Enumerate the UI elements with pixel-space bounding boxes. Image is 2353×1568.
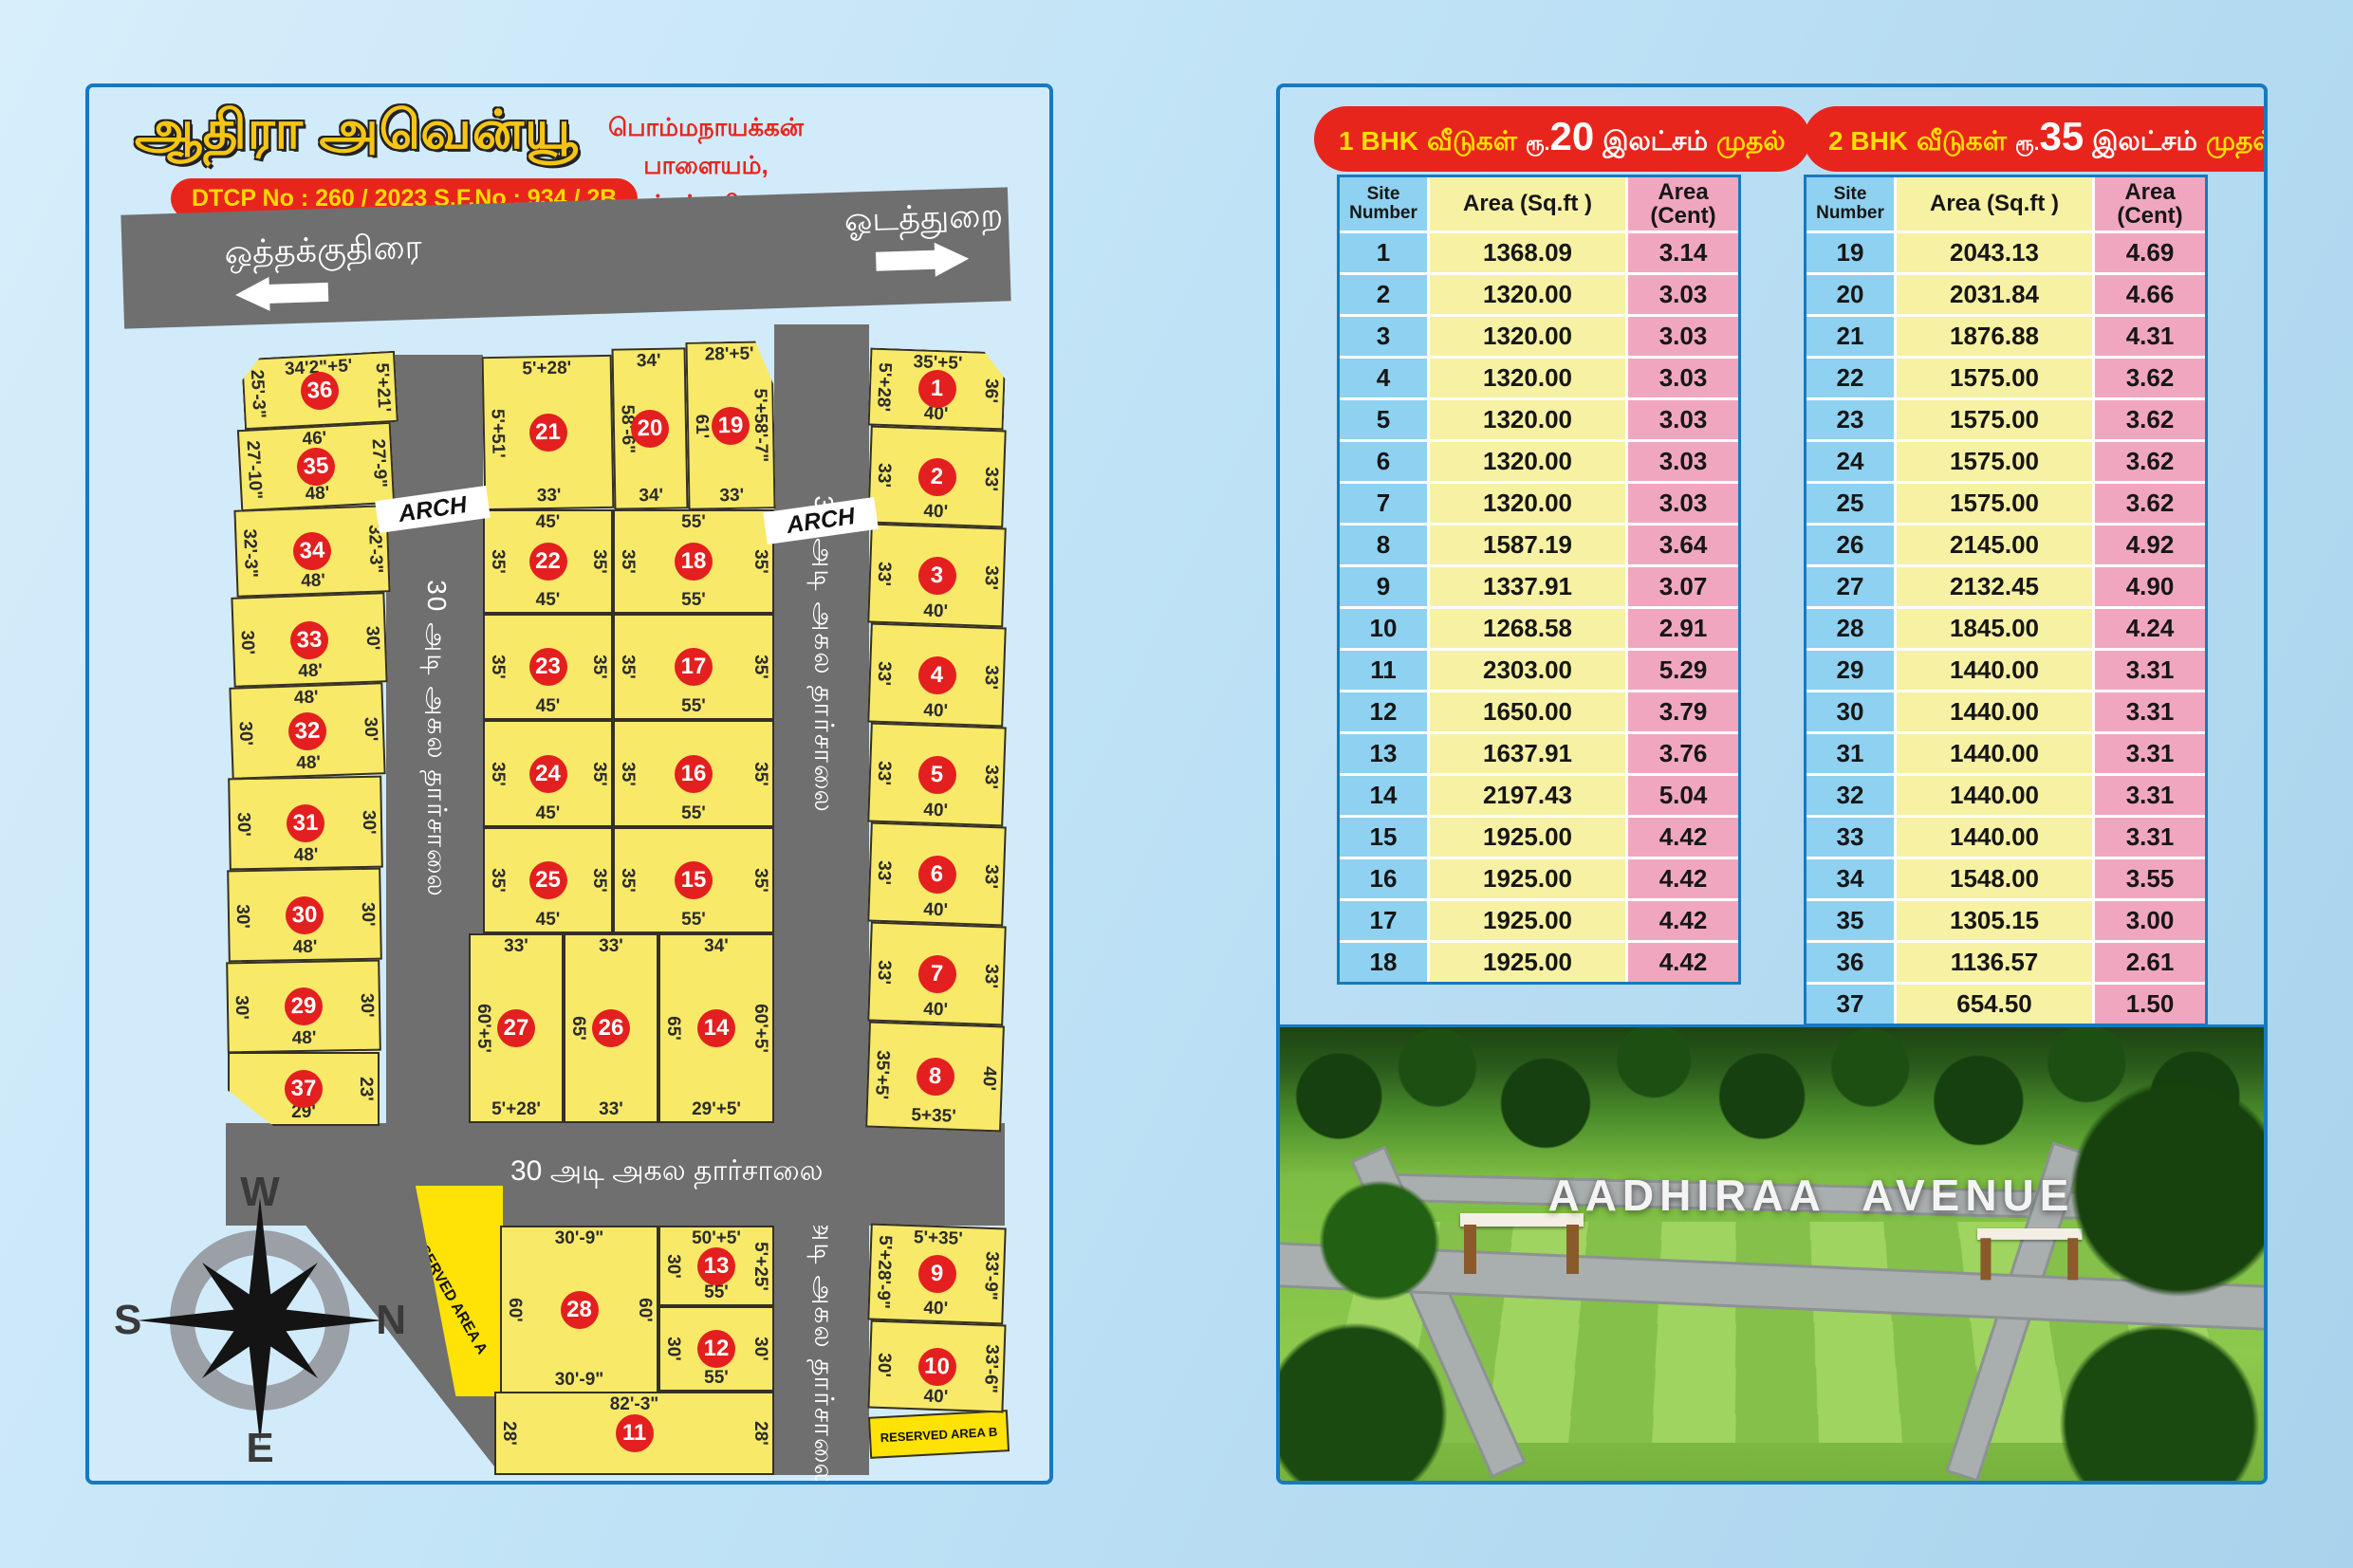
plot-34-dim-left: 32'-3" <box>238 528 261 578</box>
table-cell: 13 <box>1340 734 1427 773</box>
plot-number-badge: 13 <box>697 1247 735 1285</box>
table-cell: 2.61 <box>2095 943 2205 982</box>
plot-11: 82'-3"28'28'11 <box>494 1392 774 1475</box>
table-cell: 3.31 <box>2095 776 2205 815</box>
plot-5: 40'33'33'5 <box>867 723 1007 827</box>
table-cell: 33 <box>1806 818 1894 857</box>
compass-left-label: S <box>114 1297 141 1344</box>
plot-8: 5+35'35'+5'40'8 <box>865 1022 1005 1133</box>
table-cell: 1 <box>1340 233 1427 272</box>
table-cell: 4.42 <box>1628 901 1738 940</box>
table-cell: 1305.15 <box>1897 901 2092 940</box>
table-cell: 19 <box>1806 233 1894 272</box>
plot-31-dim-right: 30' <box>358 809 379 834</box>
plot-8-dim-bottom: 5+35' <box>911 1105 956 1128</box>
location-line-1: பொம்மநாயக்கன் பாளையம், <box>583 108 829 185</box>
table-cell: 1637.91 <box>1430 734 1625 773</box>
plot-number-badge: 19 <box>712 406 750 445</box>
plot-6-dim-right: 33' <box>980 863 1002 888</box>
plot-9-dim-left: 5'+28'-9" <box>872 1235 896 1309</box>
plot-17: 55'35'35'17 <box>613 614 774 720</box>
plot-36: 34'2"+5'25'-3"5'+21'36 <box>241 351 398 430</box>
plot-13: 50'+5'55'30'5'+25'13 <box>658 1226 774 1306</box>
plot-number-badge: 3 <box>917 556 956 595</box>
plot-32: 48'48'30'30'32 <box>229 682 385 780</box>
table-cell: 5 <box>1340 400 1427 439</box>
table-cell: 5.29 <box>1628 651 1738 690</box>
plot-24-dim-left: 35' <box>487 762 508 786</box>
plot-24-dim-bottom: 45' <box>536 803 561 824</box>
table-cell: 3.03 <box>1628 275 1738 314</box>
plot-35: 46'48'27'-10"27'-9"35 <box>237 422 395 511</box>
plot-21-dim-left: 5'+51' <box>487 409 509 458</box>
plot-6-dim-left: 33' <box>873 859 895 884</box>
table-cell: 23 <box>1806 400 1894 439</box>
plot-26: 33'33'65'26 <box>564 933 658 1123</box>
plot-23-dim-right: 35' <box>588 655 609 679</box>
table-cell: 1548.00 <box>1897 859 2092 898</box>
column-header: Area (Sq.ft ) <box>1430 177 1625 231</box>
table-cell: 28 <box>1806 609 1894 648</box>
plot-12-dim-left: 30' <box>662 1337 683 1361</box>
plot-12: 55'30'30'12 <box>658 1306 774 1392</box>
plot-37: 29'23'37 <box>228 1052 380 1126</box>
table-cell: 6 <box>1340 442 1427 481</box>
plot-14-dim-top: 34' <box>704 936 729 957</box>
plot-number-badge: 29 <box>285 987 324 1026</box>
plot-24: 45'35'35'24 <box>483 720 613 827</box>
plot-15-dim-bottom: 55' <box>681 910 706 931</box>
table-cell: 3.62 <box>2095 442 2205 481</box>
road-name-right: ஓடத்துறை <box>843 197 1004 244</box>
plot-16: 55'35'35'16 <box>613 720 774 827</box>
left-arrow-icon <box>234 275 334 312</box>
table-cell: 2303.00 <box>1430 651 1625 690</box>
plot-28-dim-left: 60' <box>504 1298 525 1322</box>
plot-4-dim-left: 33' <box>873 660 895 685</box>
plot-number-badge: 31 <box>287 803 325 842</box>
table-cell: 4.90 <box>2095 567 2205 606</box>
table-cell: 32 <box>1806 776 1894 815</box>
plot-16-dim-right: 35' <box>750 762 770 786</box>
plot-5-dim-bottom: 40' <box>923 801 948 822</box>
photo-caption: AADHIRAA AVENUE <box>1547 1170 2074 1221</box>
table-cell: 1440.00 <box>1897 734 2092 773</box>
plot-7: 40'33'33'7 <box>867 922 1007 1026</box>
plot-16-dim-left: 35' <box>617 762 638 786</box>
table-cell: 12 <box>1340 692 1427 731</box>
table-cell: 3.07 <box>1628 567 1738 606</box>
plot-9-dim-bottom: 40' <box>923 1299 948 1320</box>
column-header: Area (Cent) <box>1628 177 1738 231</box>
table-cell: 3.64 <box>1628 526 1738 564</box>
table-cell: 26 <box>1806 526 1894 564</box>
plot-9-dim-top: 5'+35' <box>914 1227 964 1250</box>
table-cell: 2.91 <box>1628 609 1738 648</box>
table-cell: 18 <box>1340 943 1427 982</box>
plot-number-badge: 18 <box>675 543 713 581</box>
plot-number-badge: 35 <box>296 447 336 487</box>
plot-number-badge: 14 <box>697 1009 735 1047</box>
table-cell: 3.14 <box>1628 233 1738 272</box>
table-cell: 3.03 <box>1628 442 1738 481</box>
table-cell: 4.69 <box>2095 233 2205 272</box>
road-33ft-vertical: 33 அடி அகல தார்சாலை 33 அடி அகல தார்சாலை <box>774 324 869 1475</box>
plot-number-badge: 12 <box>697 1330 735 1368</box>
plot-2-dim-left: 33' <box>873 462 895 487</box>
price-header-2bhk: 2 BHKவீடுகள்ரூ.35இலட்சம்முதல் <box>1804 106 2268 172</box>
info-panel: 1 BHKவீடுகள்ரூ.20இலட்சம்முதல் 2 BHKவீடுக… <box>1276 83 2268 1485</box>
table-cell: 3.62 <box>2095 400 2205 439</box>
table-cell: 27 <box>1806 567 1894 606</box>
plot-18-dim-left: 35' <box>617 549 638 574</box>
table-cell: 1575.00 <box>1897 442 2092 481</box>
plot-16-dim-bottom: 55' <box>681 803 706 824</box>
table-cell: 17 <box>1340 901 1427 940</box>
road-30ft-label: 30 அடி அகல தார்சாலை <box>417 580 452 898</box>
plot-25-dim-right: 35' <box>588 868 609 893</box>
plot-19: 28'+5'33'61'5'+58'-7"19 <box>685 341 775 510</box>
table-cell: 2145.00 <box>1897 526 2092 564</box>
plot-6: 40'33'33'6 <box>867 822 1007 927</box>
plot-7-dim-right: 33' <box>980 963 1002 987</box>
table-cell: 22 <box>1806 359 1894 397</box>
plot-22-dim-left: 35' <box>487 549 508 574</box>
plot-23-dim-bottom: 45' <box>536 696 561 717</box>
table-cell: 1845.00 <box>1897 609 2092 648</box>
plot-3-dim-left: 33' <box>873 561 895 585</box>
plot-11-dim-top: 82'-3" <box>610 1394 659 1415</box>
table-cell: 15 <box>1340 818 1427 857</box>
plot-30: 48'30'30'30 <box>227 868 382 963</box>
plot-30-dim-bottom: 48' <box>293 937 318 958</box>
plot-24-dim-right: 35' <box>588 762 609 786</box>
table-cell: 1440.00 <box>1897 818 2092 857</box>
plot-25: 45'35'35'25 <box>483 827 613 933</box>
plot-20: 34'34'58'-6"20 <box>612 347 689 509</box>
compass-rose: W N S E <box>116 1176 404 1465</box>
plot-15-dim-right: 35' <box>750 868 770 893</box>
table-cell: 9 <box>1340 567 1427 606</box>
plot-number-badge: 26 <box>592 1009 630 1047</box>
plot-28-dim-bottom: 30'-9" <box>555 1370 604 1391</box>
table-cell: 2 <box>1340 275 1427 314</box>
table-cell: 10 <box>1340 609 1427 648</box>
plot-number-badge: 32 <box>287 711 326 750</box>
plot-14-dim-left: 65' <box>662 1016 683 1041</box>
plot-18-dim-top: 55' <box>681 512 706 533</box>
table-cell: 4.92 <box>2095 526 2205 564</box>
plot-number-badge: 27 <box>497 1009 535 1047</box>
plot-number-badge: 23 <box>529 648 567 686</box>
table-cell: 1320.00 <box>1430 317 1625 356</box>
plot-17-dim-bottom: 55' <box>681 696 706 717</box>
plot-8-dim-left: 35'+5' <box>870 1050 893 1100</box>
plot-33-dim-bottom: 48' <box>298 661 323 683</box>
table-cell: 21 <box>1806 317 1894 356</box>
table-cell: 2197.43 <box>1430 776 1625 815</box>
plot-number-badge: 25 <box>529 861 567 899</box>
plot-34-dim-bottom: 48' <box>301 571 325 593</box>
plot-3-dim-bottom: 40' <box>923 601 948 623</box>
plot-5-dim-left: 33' <box>873 760 895 784</box>
plot-25-dim-bottom: 45' <box>536 910 561 931</box>
plot-28: 30'-9"30'-9"60'60'28 <box>500 1226 658 1393</box>
plot-11-dim-right: 28' <box>750 1421 770 1446</box>
plot-21-dim-bottom: 33' <box>537 486 562 507</box>
plot-number-badge: 24 <box>529 755 567 793</box>
plot-13-dim-left: 30' <box>662 1254 683 1279</box>
plot-21-dim-top: 5'+28' <box>522 359 571 380</box>
compass-top-label: W <box>240 1169 280 1216</box>
plot-7-dim-bottom: 40' <box>923 1000 948 1022</box>
page-title: ஆதிரா அவென்யூ <box>135 99 543 168</box>
plot-number-badge: 11 <box>616 1414 654 1452</box>
plot-37-dim-right: 23' <box>355 1077 376 1101</box>
plot-17-dim-right: 35' <box>750 655 770 679</box>
table-cell: 5.04 <box>1628 776 1738 815</box>
plot-27-dim-top: 33' <box>504 936 528 957</box>
table-cell: 4.42 <box>1628 818 1738 857</box>
table-cell: 3.79 <box>1628 692 1738 731</box>
reserved-area-b: RESERVED AREA B <box>868 1410 1010 1459</box>
plot-number-badge: 4 <box>917 655 956 694</box>
plot-33-dim-right: 30' <box>361 625 383 650</box>
table-cell: 1575.00 <box>1897 400 2092 439</box>
table-cell: 24 <box>1806 442 1894 481</box>
plot-1-dim-left: 5'+28' <box>872 362 895 413</box>
site-table-2bhk: Site NumberArea (Sq.ft )Area (Cent)19204… <box>1804 175 2208 1026</box>
table-cell: 1136.57 <box>1897 943 2092 982</box>
plot-14-dim-right: 60'+5' <box>750 1004 770 1053</box>
plot-9: 5'+35'40'5'+28'-9"33'-9"9 <box>867 1224 1006 1325</box>
table-cell: 3.31 <box>2095 818 2205 857</box>
plot-36-dim-left: 25'-3" <box>246 369 269 419</box>
plot-26-dim-left: 65' <box>567 1016 588 1041</box>
plot-18-dim-bottom: 55' <box>681 590 706 611</box>
table-cell: 1320.00 <box>1430 400 1625 439</box>
table-cell: 2031.84 <box>1897 275 2092 314</box>
plot-25-dim-left: 35' <box>487 868 508 893</box>
plot-2-dim-bottom: 40' <box>923 502 948 524</box>
plot-30-dim-right: 30' <box>357 901 378 926</box>
table-cell: 1368.09 <box>1430 233 1625 272</box>
plot-28-dim-top: 30'-9" <box>555 1228 604 1249</box>
table-cell: 3.55 <box>2095 859 2205 898</box>
table-cell: 35 <box>1806 901 1894 940</box>
plot-number-badge: 5 <box>917 755 956 794</box>
plot-3: 40'33'33'3 <box>867 524 1007 628</box>
plot-22-dim-bottom: 45' <box>536 590 561 611</box>
plot-32-dim-right: 30' <box>360 716 381 741</box>
table-cell: 7 <box>1340 484 1427 523</box>
plot-5-dim-right: 33' <box>980 764 1002 788</box>
plot-10-dim-bottom: 40' <box>923 1387 948 1409</box>
plot-10-dim-left: 30' <box>873 1352 895 1376</box>
plot-12-dim-bottom: 55' <box>704 1368 729 1389</box>
plot-4-dim-bottom: 40' <box>923 701 948 723</box>
table-cell: 4.31 <box>2095 317 2205 356</box>
table-cell: 3.31 <box>2095 734 2205 773</box>
plot-7-dim-left: 33' <box>873 959 895 984</box>
plot-number-badge: 1 <box>917 369 956 408</box>
table-cell: 1575.00 <box>1897 359 2092 397</box>
plot-14: 34'29'+5'65'60'+5'14 <box>658 933 774 1123</box>
plot-number-badge: 16 <box>675 755 713 793</box>
compass-right-label: N <box>376 1297 406 1344</box>
table-cell: 3.62 <box>2095 484 2205 523</box>
plot-19-dim-top: 28'+5' <box>705 344 754 366</box>
table-cell: 3.03 <box>1628 359 1738 397</box>
plot-31-dim-bottom: 48' <box>294 845 319 866</box>
plot-4: 40'33'33'4 <box>867 623 1007 728</box>
plot-number-badge: 6 <box>917 855 956 894</box>
plot-11-dim-left: 28' <box>498 1421 519 1446</box>
table-cell: 3.76 <box>1628 734 1738 773</box>
plot-number-badge: 21 <box>528 414 567 452</box>
table-cell: 37 <box>1806 985 1894 1024</box>
plot-29-dim-right: 30' <box>356 993 377 1018</box>
plot-35-dim-left: 27'-10" <box>241 440 265 500</box>
plot-2-dim-right: 33' <box>980 466 1002 490</box>
plot-6-dim-bottom: 40' <box>923 900 948 922</box>
plot-23-dim-left: 35' <box>487 655 508 679</box>
plot-1-dim-right: 36' <box>980 378 1002 403</box>
table-cell: 1320.00 <box>1430 442 1625 481</box>
plot-8-dim-right: 40' <box>978 1066 1000 1091</box>
plot-27-dim-bottom: 5'+28' <box>491 1099 541 1120</box>
table-cell: 14 <box>1340 776 1427 815</box>
plot-17-dim-left: 35' <box>617 655 638 679</box>
plot-1: 35'+5'40'5'+28'36'1 <box>868 348 1007 431</box>
table-cell: 11 <box>1340 651 1427 690</box>
table-cell: 2043.13 <box>1897 233 2092 272</box>
table-cell: 1925.00 <box>1430 901 1625 940</box>
table-cell: 3.03 <box>1628 317 1738 356</box>
plot-31: 48'30'30'31 <box>228 776 383 871</box>
palm-tree-icon <box>1308 1170 1451 1312</box>
table-cell: 1650.00 <box>1430 692 1625 731</box>
column-header: Site Number <box>1806 177 1894 231</box>
site-table-1bhk: Site NumberArea (Sq.ft )Area (Cent)11368… <box>1337 175 1741 985</box>
plot-33: 48'30'30'33 <box>231 592 387 688</box>
plot-number-badge: 20 <box>631 410 670 449</box>
plot-19-dim-bottom: 33' <box>719 486 744 507</box>
plot-27: 33'5'+28'60'+5'27 <box>469 933 564 1123</box>
plot-3-dim-right: 33' <box>980 564 1002 589</box>
plot-36-dim-right: 5'+21' <box>371 362 395 413</box>
plot-32-dim-left: 30' <box>234 721 256 746</box>
table-cell: 3.03 <box>1628 400 1738 439</box>
plot-14-dim-bottom: 29'+5' <box>692 1099 741 1120</box>
plot-number-badge: 33 <box>289 620 328 659</box>
plot-34: 48'32'-3"32'-3"34 <box>233 505 390 598</box>
plot-number-badge: 28 <box>561 1291 599 1329</box>
avenue-photo: AADHIRAA AVENUE <box>1280 1024 2264 1481</box>
plot-35-dim-bottom: 48' <box>305 483 330 505</box>
plot-10-dim-right: 33'-6" <box>979 1343 1002 1393</box>
plot-28-dim-right: 60' <box>634 1298 655 1322</box>
table-cell: 31 <box>1806 734 1894 773</box>
table-cell: 4 <box>1340 359 1427 397</box>
table-cell: 1925.00 <box>1430 943 1625 982</box>
table-cell: 3.31 <box>2095 651 2205 690</box>
plot-number-badge: 30 <box>286 895 324 934</box>
right-arrow-icon <box>870 242 970 279</box>
plot-number-badge: 10 <box>917 1347 956 1386</box>
plot-12-dim-right: 30' <box>750 1337 770 1361</box>
table-cell: 1.50 <box>2095 985 2205 1024</box>
plot-19-dim-left: 61' <box>691 414 712 438</box>
plot-number-badge: 9 <box>917 1254 956 1293</box>
compass-bottom-label: E <box>246 1425 273 1472</box>
plot-26-dim-bottom: 33' <box>599 1099 623 1120</box>
table-cell: 3 <box>1340 317 1427 356</box>
plot-22-dim-right: 35' <box>588 549 609 574</box>
plot-22-dim-top: 45' <box>536 512 561 533</box>
table-cell: 2132.45 <box>1897 567 2092 606</box>
table-cell: 1440.00 <box>1897 692 2092 731</box>
plot-13-dim-bottom: 55' <box>704 1282 729 1303</box>
plot-13-dim-right: 5'+25' <box>750 1242 770 1291</box>
table-cell: 1320.00 <box>1430 484 1625 523</box>
plot-number-badge: 22 <box>529 543 567 581</box>
plot-35-dim-right: 27'-9" <box>367 438 391 489</box>
plot-18-dim-right: 35' <box>750 549 770 574</box>
plot-32-dim-top: 48' <box>294 688 319 710</box>
table-cell: 16 <box>1340 859 1427 898</box>
plot-18: 55'55'35'35'18 <box>613 509 774 614</box>
plot-number-badge: 7 <box>917 954 956 993</box>
table-cell: 30 <box>1806 692 1894 731</box>
table-cell: 25 <box>1806 484 1894 523</box>
table-cell: 3.00 <box>2095 901 2205 940</box>
plot-number-badge: 17 <box>675 648 713 686</box>
plot-2: 40'33'33'2 <box>867 426 1007 528</box>
table-cell: 4.66 <box>2095 275 2205 314</box>
plot-21: 5'+28'33'5'+51'21 <box>482 355 615 510</box>
table-cell: 4.42 <box>1628 943 1738 982</box>
table-cell: 4.24 <box>2095 609 2205 648</box>
plot-20-dim-top: 34' <box>637 351 661 372</box>
plot-9-dim-right: 33'-9" <box>979 1251 1002 1301</box>
table-cell: 1268.58 <box>1430 609 1625 648</box>
table-cell: 1440.00 <box>1897 776 2092 815</box>
plot-29-dim-left: 30' <box>231 995 251 1020</box>
table-cell: 1320.00 <box>1430 275 1625 314</box>
table-cell: 20 <box>1806 275 1894 314</box>
column-header: Site Number <box>1340 177 1427 231</box>
plot-29-dim-bottom: 48' <box>292 1028 317 1049</box>
table-cell: 8 <box>1340 526 1427 564</box>
table-cell: 1925.00 <box>1430 859 1625 898</box>
table-cell: 1575.00 <box>1897 484 2092 523</box>
plot-20-dim-bottom: 34' <box>639 486 663 507</box>
plot-27-dim-left: 60'+5' <box>472 1004 493 1053</box>
plot-10: 40'30'33'-6"10 <box>867 1320 1006 1413</box>
plot-29: 48'30'30'29 <box>226 960 381 1054</box>
table-cell: 3.31 <box>2095 692 2205 731</box>
table-cell: 1337.91 <box>1430 567 1625 606</box>
table-cell: 1587.19 <box>1430 526 1625 564</box>
table-cell: 1925.00 <box>1430 818 1625 857</box>
plot-22: 45'45'35'35'22 <box>483 509 613 614</box>
plot-31-dim-left: 30' <box>232 812 253 837</box>
road-33ft-label-upper: 33 அடி அகல தார்சாலை <box>805 495 839 814</box>
plot-4-dim-right: 33' <box>980 664 1002 689</box>
plot-26-dim-top: 33' <box>599 936 623 957</box>
plot-number-badge: 37 <box>285 1070 323 1108</box>
